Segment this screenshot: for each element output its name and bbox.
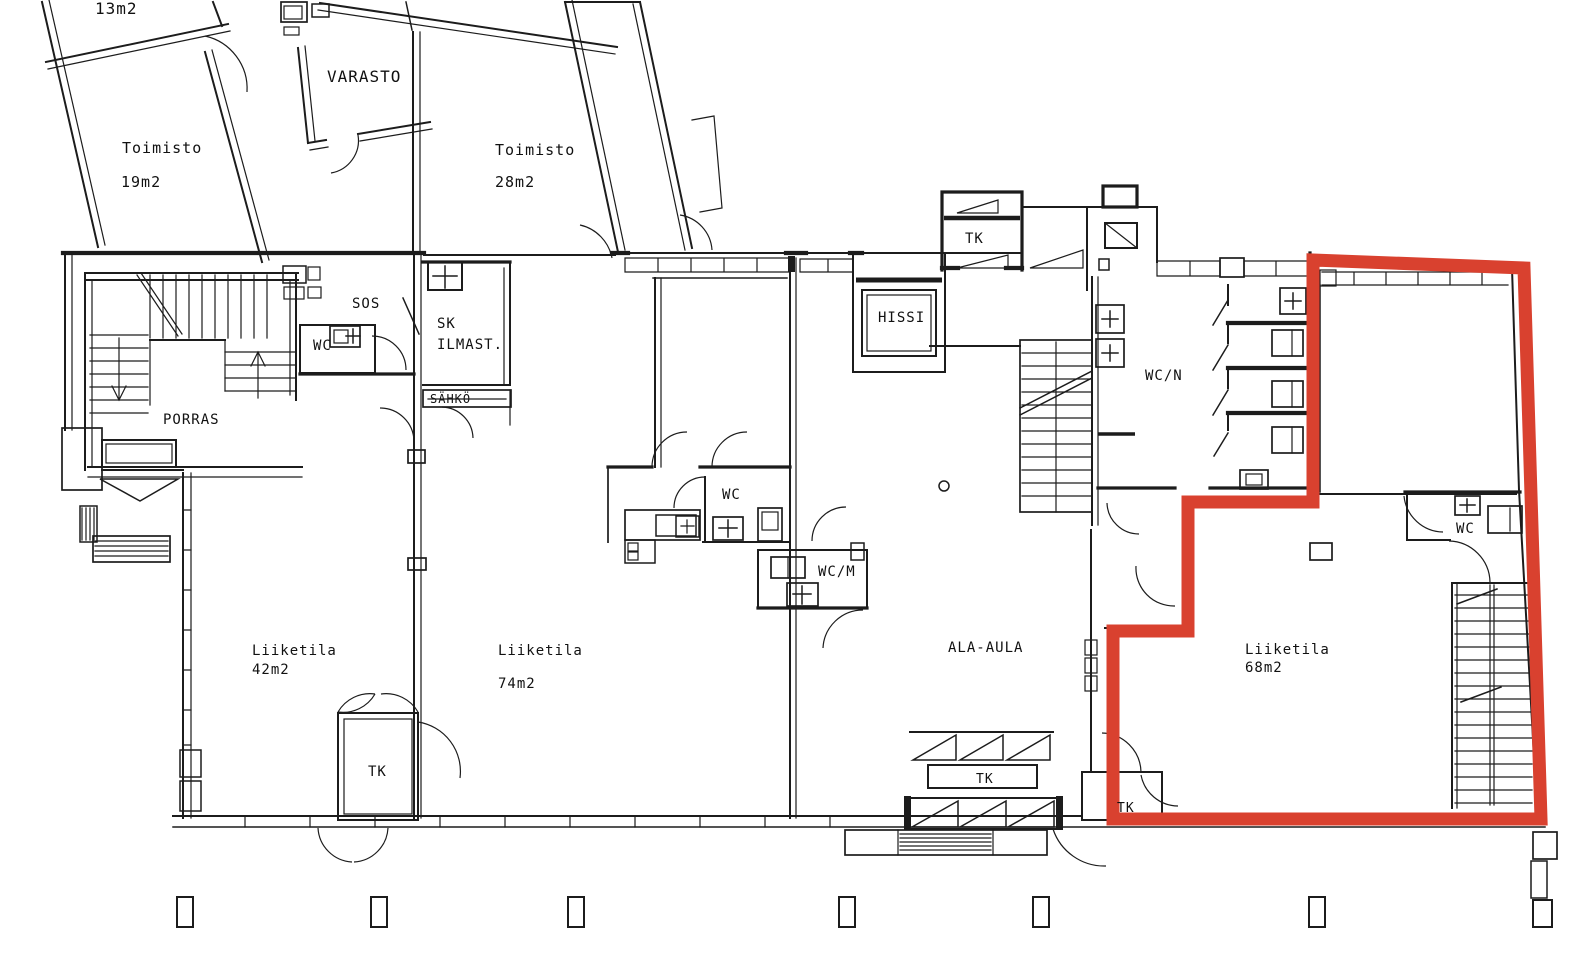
sos-wc-cluster [283, 266, 419, 441]
highlight-outline [1113, 260, 1541, 819]
label-68m2: 68m2 [1245, 660, 1283, 676]
label-liiketila68: Liiketila [1245, 642, 1330, 658]
ala-aula-entrance [845, 481, 1106, 866]
room-labels: 13m2 Toimisto 19m2 VARASTO Toimisto 28m2… [95, 0, 1475, 816]
label-sos: SOS [352, 296, 380, 312]
label-42m2: 42m2 [252, 662, 290, 678]
label-19m2: 19m2 [121, 173, 161, 191]
label-tk-red: TK [1117, 801, 1135, 816]
tilted-office-block [42, 0, 722, 262]
label-tk-mid: TK [976, 772, 994, 787]
label-sahko: SÄHKÖ [430, 390, 471, 406]
vent-shaft-cluster [1022, 186, 1157, 290]
label-porras: PORRAS [163, 412, 220, 428]
label-wc-mid: WC [722, 487, 741, 503]
label-13m2: 13m2 [95, 0, 138, 18]
wcn-toilets [1092, 253, 1310, 525]
label-wc-porras: WC [313, 338, 332, 354]
floor-plan-page: 13m2 Toimisto 19m2 VARASTO Toimisto 28m2… [0, 0, 1594, 958]
label-74m2: 74m2 [498, 676, 536, 692]
label-wcn: WC/N [1145, 368, 1183, 384]
label-hissi: HISSI [878, 310, 925, 326]
label-tk-top: TK [965, 231, 984, 247]
label-ilmast: ILMAST. [437, 337, 503, 353]
tk-vestibule-top [942, 192, 1083, 270]
label-varasto: VARASTO [327, 67, 401, 86]
column-markers [177, 897, 1552, 927]
label-ala-aula: ALA-AULA [948, 640, 1023, 656]
label-sk: SK [437, 316, 456, 332]
center-rooms [608, 258, 867, 818]
label-toimisto28: Toimisto [495, 141, 575, 159]
label-28m2: 28m2 [495, 173, 535, 191]
porras-stairwell [85, 273, 302, 477]
building-envelope [62, 253, 1545, 827]
label-toimisto19: Toimisto [122, 139, 202, 157]
mid-staircase [930, 340, 1097, 770]
label-liiketila74: Liiketila [498, 643, 583, 659]
label-wcm: WC/M [818, 564, 856, 580]
label-liiketila42: Liiketila [252, 643, 337, 659]
label-wc-right: WC [1456, 521, 1475, 537]
floor-plan-canvas: 13m2 Toimisto 19m2 VARASTO Toimisto 28m2… [0, 0, 1594, 958]
label-tk-left: TK [368, 764, 387, 780]
